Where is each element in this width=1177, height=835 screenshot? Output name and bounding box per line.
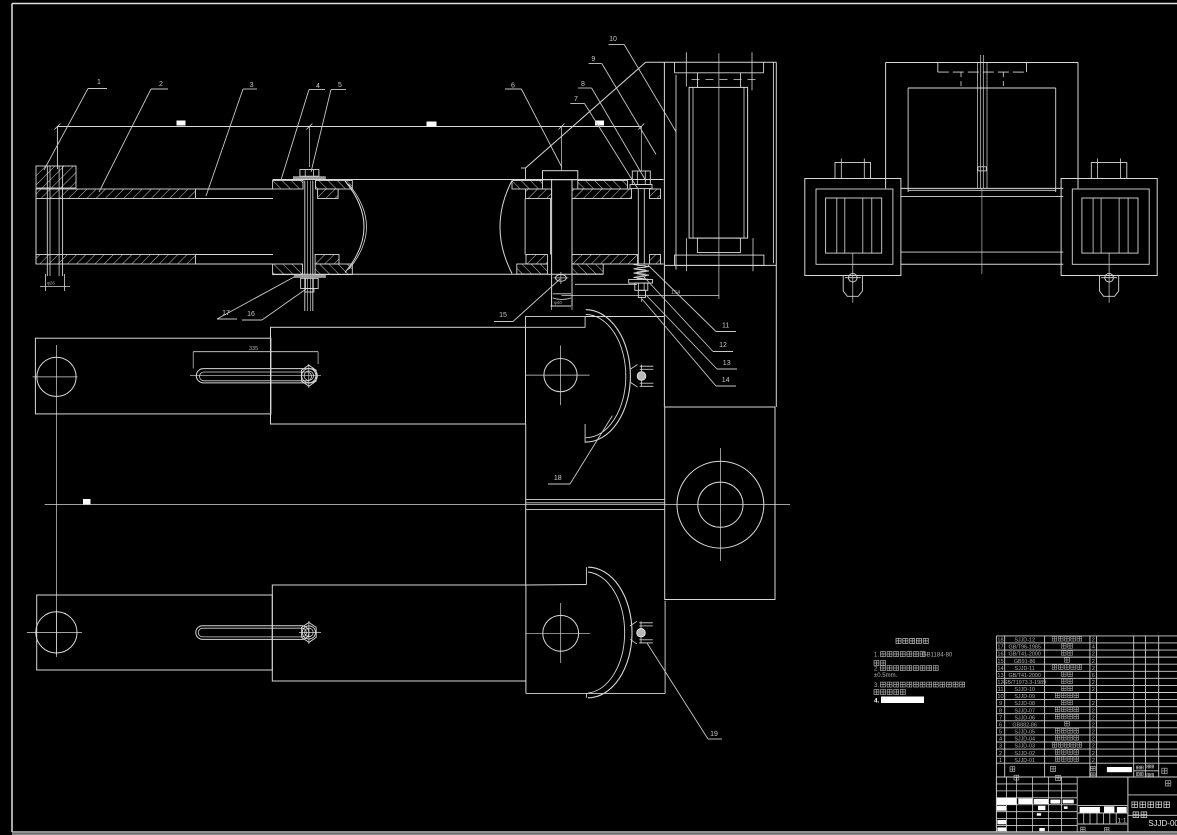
- svg-text:SJJD-07: SJJD-07: [1014, 708, 1035, 714]
- svg-text:2: 2: [1092, 687, 1095, 693]
- svg-text:6: 6: [999, 722, 1002, 728]
- svg-text:4: 4: [316, 83, 320, 90]
- svg-text:SJJD-09: SJJD-09: [1014, 694, 1035, 700]
- svg-text:SJJD-04: SJJD-04: [1014, 737, 1035, 743]
- svg-text:GB/T1973.3-1989: GB/T1973.3-1989: [1003, 680, 1046, 686]
- svg-text:12: 12: [719, 342, 727, 349]
- svg-text:8: 8: [999, 708, 1002, 714]
- svg-text:2: 2: [1092, 659, 1095, 665]
- svg-text:SJJD-06: SJJD-06: [1014, 715, 1035, 721]
- svg-text:2: 2: [1092, 715, 1095, 721]
- svg-text:φ40: φ40: [554, 300, 562, 305]
- svg-text:2: 2: [1092, 638, 1095, 644]
- svg-text:15: 15: [997, 659, 1003, 665]
- svg-text:3: 3: [999, 744, 1002, 750]
- svg-text:4: 4: [999, 737, 1002, 743]
- svg-text:1.: 1.: [874, 653, 879, 659]
- svg-text:SJJD-11: SJJD-11: [1015, 666, 1035, 672]
- svg-text:7: 7: [999, 715, 1002, 721]
- svg-text:19: 19: [710, 731, 718, 738]
- svg-text:SJJD-12: SJJD-12: [1014, 638, 1035, 644]
- svg-text:335: 335: [249, 346, 258, 352]
- svg-text:2: 2: [1092, 666, 1095, 672]
- svg-text:14: 14: [997, 666, 1003, 672]
- svg-text:SJJD-10: SJJD-10: [1014, 687, 1035, 693]
- svg-text:2: 2: [1092, 680, 1095, 686]
- svg-text:SJJD-02: SJJD-02: [1014, 751, 1035, 757]
- svg-text:SJJD-03: SJJD-03: [1014, 744, 1035, 750]
- svg-text:15: 15: [499, 312, 507, 319]
- svg-text:1: 1: [97, 79, 101, 86]
- svg-text:17: 17: [997, 645, 1003, 651]
- svg-text:2: 2: [1092, 744, 1095, 750]
- svg-text:13: 13: [997, 673, 1003, 679]
- svg-text:2: 2: [1092, 758, 1095, 764]
- svg-text:16: 16: [247, 311, 255, 318]
- svg-text:1:1: 1:1: [1118, 818, 1127, 825]
- svg-text:GB/T41-2000: GB/T41-2000: [1008, 673, 1040, 679]
- svg-text:14: 14: [722, 377, 730, 384]
- svg-text:φ26: φ26: [47, 281, 55, 286]
- svg-text:11: 11: [722, 323, 729, 330]
- svg-text:2.: 2.: [874, 667, 879, 673]
- svg-text:SJJD-00: SJJD-00: [1148, 819, 1177, 828]
- svg-text:2: 2: [159, 81, 163, 88]
- svg-text:18: 18: [997, 638, 1003, 644]
- svg-text:2: 2: [999, 751, 1002, 757]
- svg-text:9: 9: [591, 56, 595, 63]
- svg-text:2: 2: [1092, 730, 1095, 736]
- svg-text:SJJD-08: SJJD-08: [1014, 701, 1035, 707]
- svg-text:3.: 3.: [874, 683, 879, 689]
- svg-text:4: 4: [1092, 645, 1095, 651]
- svg-text:13: 13: [723, 360, 731, 367]
- svg-text:2: 2: [1092, 751, 1095, 757]
- svg-text:5: 5: [338, 82, 342, 89]
- svg-text:2: 2: [1092, 701, 1095, 707]
- svg-text:2: 2: [1092, 708, 1095, 714]
- svg-text:11: 11: [998, 687, 1004, 693]
- svg-text:1: 1: [999, 758, 1002, 764]
- svg-text:6: 6: [511, 83, 515, 90]
- svg-text:2: 2: [1092, 652, 1095, 658]
- svg-text:10: 10: [997, 694, 1003, 700]
- svg-text:8: 8: [581, 81, 585, 88]
- svg-text:6: 6: [1092, 673, 1095, 679]
- svg-text:±0.5mm.: ±0.5mm.: [874, 673, 898, 679]
- svg-text:16: 16: [997, 652, 1003, 658]
- svg-text:2: 2: [1092, 722, 1095, 728]
- svg-text:GB/T96-1985: GB/T96-1985: [1008, 645, 1040, 651]
- svg-text:GB/T41-2000: GB/T41-2000: [1008, 652, 1040, 658]
- svg-text:GB91-86: GB91-86: [1014, 659, 1036, 665]
- svg-text:SJJD-01: SJJD-01: [1014, 758, 1035, 764]
- svg-text:4.: 4.: [874, 698, 880, 705]
- svg-text:5: 5: [999, 730, 1002, 736]
- svg-text:SJJD-05: SJJD-05: [1014, 730, 1035, 736]
- svg-text:7: 7: [574, 96, 578, 103]
- svg-text:10: 10: [609, 36, 617, 43]
- svg-text:18: 18: [554, 475, 562, 482]
- svg-text:GB1184-80: GB1184-80: [922, 653, 953, 659]
- svg-text:GB882-86: GB882-86: [1012, 722, 1037, 728]
- svg-text:3: 3: [250, 82, 254, 89]
- svg-text:9: 9: [999, 701, 1002, 707]
- svg-text:2: 2: [1092, 737, 1095, 743]
